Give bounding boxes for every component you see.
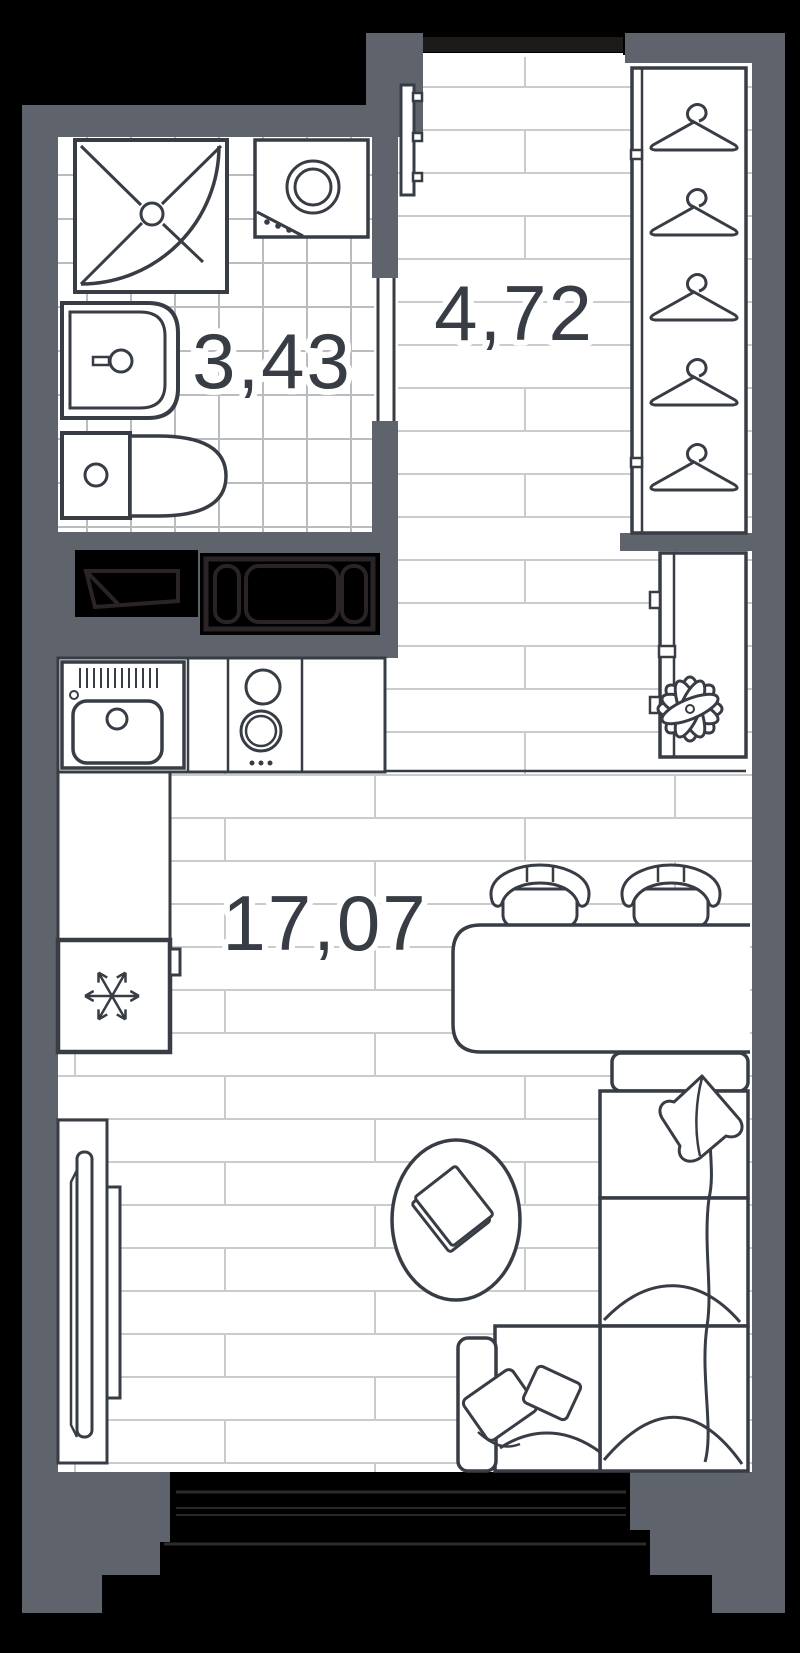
electric-panel-icon <box>401 85 422 195</box>
vent-shaft-left <box>75 550 198 617</box>
washing-machine-icon <box>255 140 368 237</box>
chair-icon <box>622 865 720 927</box>
plant-icon <box>658 677 722 741</box>
area-label-hallway: 4,72 <box>434 269 594 357</box>
area-label-bathroom: 3,43 <box>192 317 352 405</box>
entry-floor <box>423 55 625 137</box>
entry-door-leaf <box>423 37 623 52</box>
window <box>164 1477 646 1613</box>
area-label-living-kitchen: 17,07 <box>222 879 427 967</box>
tv-icon <box>77 1152 92 1437</box>
kitchen-sink-icon <box>62 662 184 768</box>
tv-shelf <box>107 1187 120 1398</box>
wardrobe <box>631 68 746 533</box>
shower-icon <box>75 140 227 292</box>
bathroom-sink-icon <box>62 303 178 418</box>
coffee-table <box>392 1140 520 1300</box>
hall-cabinet <box>650 553 746 757</box>
kitchen-cabinet-column <box>58 772 170 940</box>
vent-shaft-right <box>200 553 380 635</box>
toilet-icon <box>62 433 226 518</box>
bathroom-door <box>374 278 398 421</box>
dining-table <box>453 925 750 1052</box>
kitchen-counter <box>58 658 385 772</box>
fridge-icon <box>58 940 180 1052</box>
entry-door <box>423 37 623 57</box>
chair-icon <box>491 865 589 927</box>
floor-plan: 3,43 4,72 17,07 <box>0 0 800 1653</box>
